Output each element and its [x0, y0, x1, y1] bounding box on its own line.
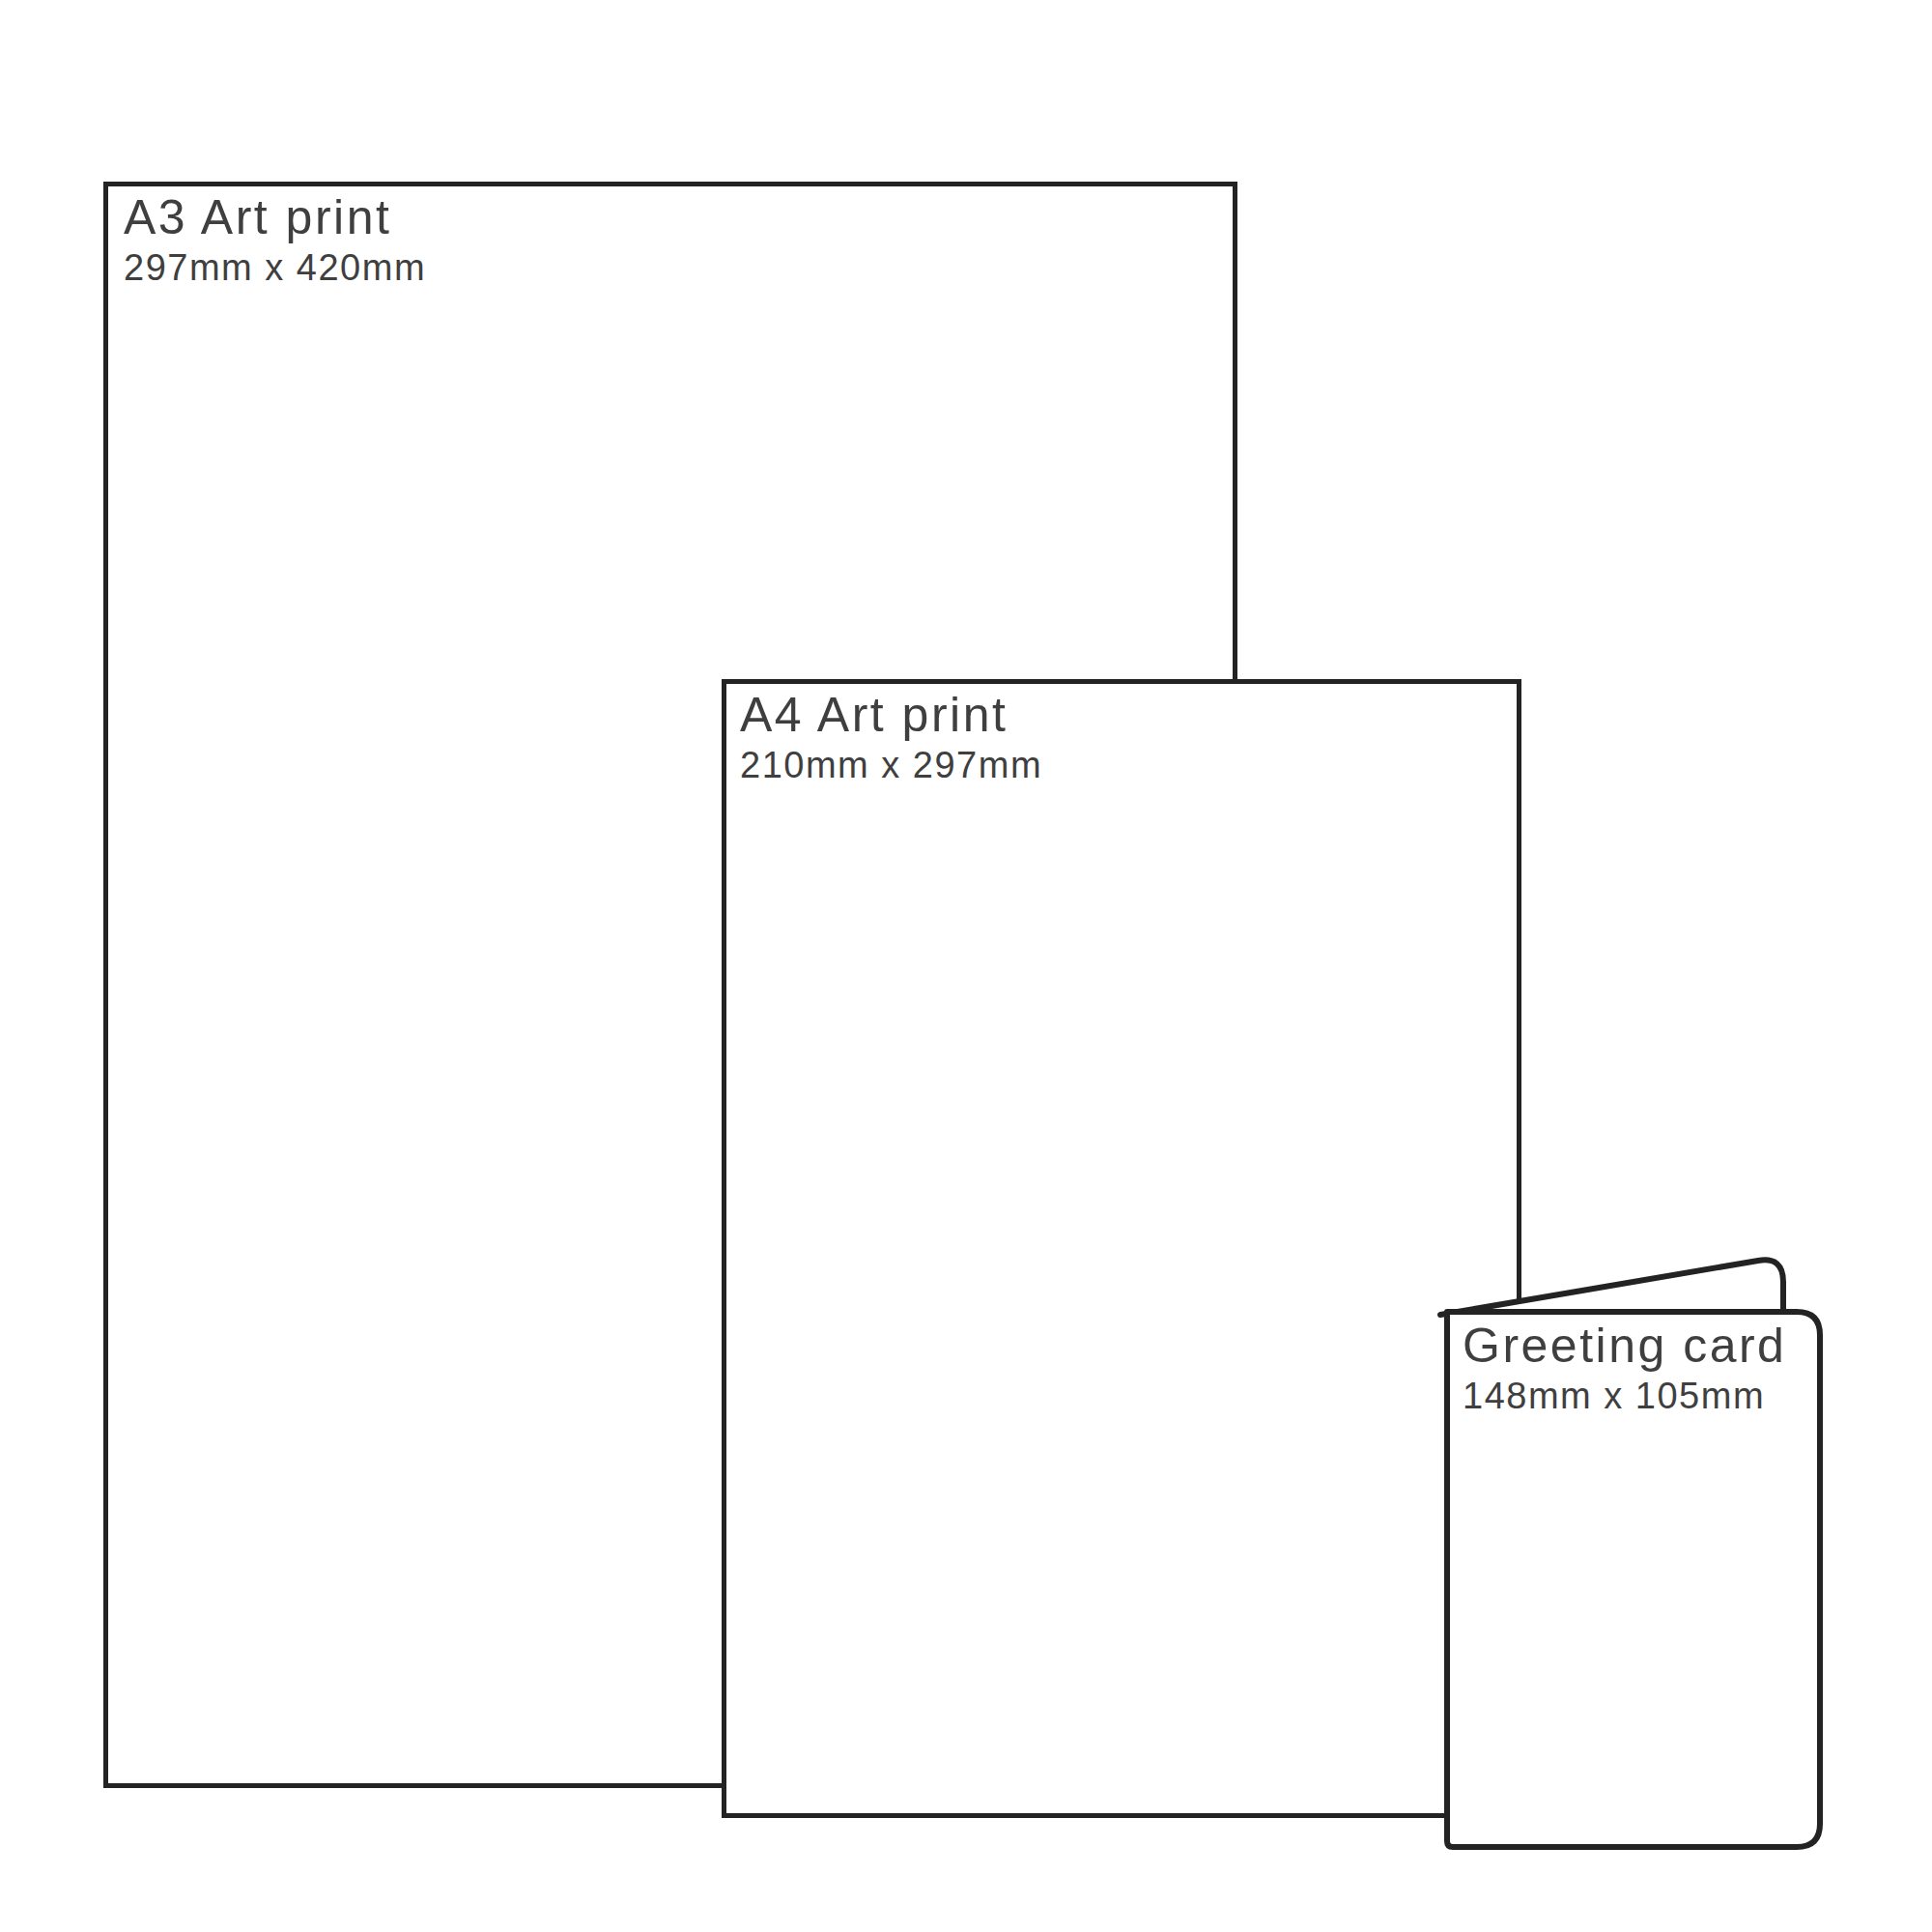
greeting-card-title: Greeting card: [1463, 1318, 1786, 1374]
a3-print-label: A3 Art print 297mm x 420mm: [124, 189, 426, 290]
a4-print-outline: [724, 682, 1520, 1816]
size-outlines-canvas: [0, 0, 1932, 1932]
a4-print-title: A4 Art print: [740, 687, 1042, 743]
greeting-card-label: Greeting card 148mm x 105mm: [1463, 1318, 1786, 1418]
greeting-card-dimensions: 148mm x 105mm: [1463, 1374, 1786, 1418]
a3-print-dimensions: 297mm x 420mm: [124, 245, 426, 290]
print-size-comparison-diagram: A3 Art print 297mm x 420mm A4 Art print …: [0, 0, 1932, 1932]
a4-print-dimensions: 210mm x 297mm: [740, 743, 1042, 787]
a4-print-label: A4 Art print 210mm x 297mm: [740, 687, 1042, 787]
a3-print-title: A3 Art print: [124, 189, 426, 245]
